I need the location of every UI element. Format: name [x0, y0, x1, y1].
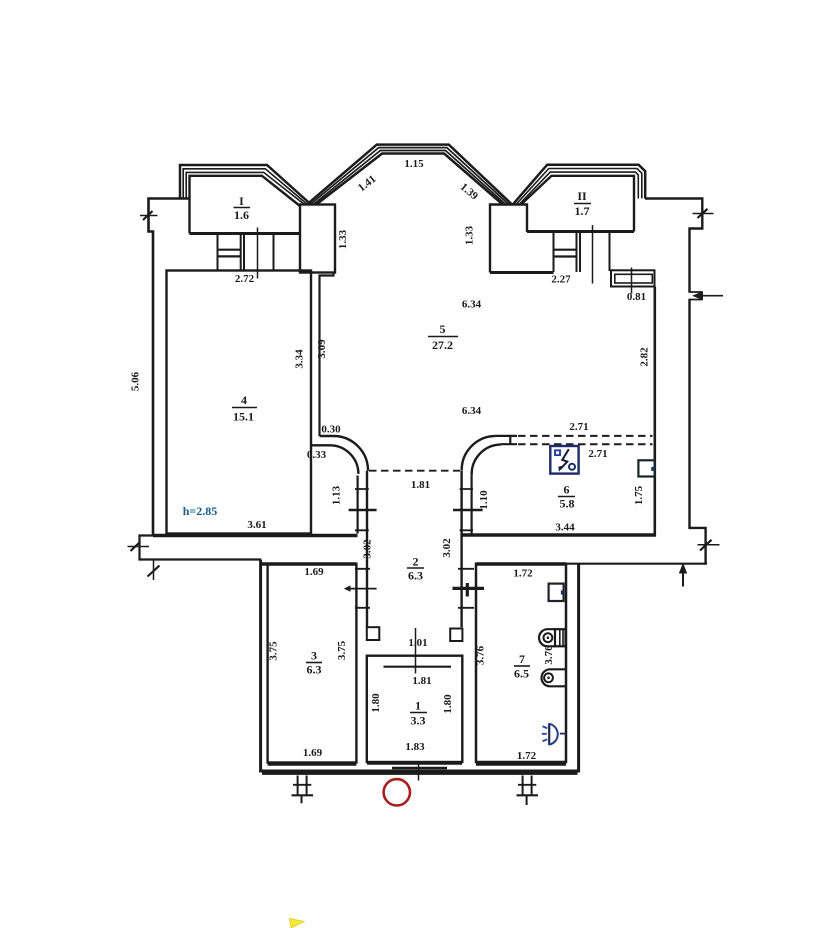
svg-text:2.72: 2.72 — [235, 273, 255, 285]
svg-text:3.09: 3.09 — [316, 339, 328, 359]
svg-text:1.15: 1.15 — [404, 158, 424, 170]
svg-text:6.34: 6.34 — [462, 299, 482, 311]
svg-text:1.01: 1.01 — [408, 637, 427, 649]
svg-text:h=2.85: h=2.85 — [183, 504, 218, 518]
svg-text:3.3: 3.3 — [411, 714, 426, 728]
svg-text:6.5: 6.5 — [514, 667, 529, 681]
svg-text:3.02: 3.02 — [441, 538, 453, 558]
svg-text:6.34: 6.34 — [462, 405, 482, 417]
svg-text:II: II — [577, 189, 587, 203]
svg-text:6: 6 — [564, 483, 570, 497]
svg-text:1.75: 1.75 — [633, 485, 645, 505]
svg-text:I: I — [239, 194, 244, 208]
svg-text:2: 2 — [413, 555, 419, 569]
svg-text:2.82: 2.82 — [639, 347, 651, 367]
svg-text:1.69: 1.69 — [303, 747, 323, 759]
svg-text:3.75: 3.75 — [336, 640, 348, 660]
svg-text:6.3: 6.3 — [307, 663, 322, 677]
svg-text:3.34: 3.34 — [294, 349, 306, 369]
svg-text:7: 7 — [519, 652, 525, 666]
svg-text:3.76: 3.76 — [475, 645, 487, 665]
svg-text:27.2: 27.2 — [432, 338, 453, 352]
svg-text:5.06: 5.06 — [130, 371, 142, 391]
svg-text:3: 3 — [311, 649, 317, 663]
svg-text:2.27: 2.27 — [551, 274, 571, 286]
svg-text:3.76: 3.76 — [543, 645, 555, 665]
svg-text:1.13: 1.13 — [331, 485, 343, 505]
svg-text:0.30: 0.30 — [321, 424, 341, 436]
svg-text:15.1: 15.1 — [233, 410, 254, 424]
svg-text:1.33: 1.33 — [464, 225, 476, 245]
svg-text:1.80: 1.80 — [370, 693, 382, 713]
svg-text:1.81: 1.81 — [411, 479, 430, 491]
svg-text:1.83: 1.83 — [405, 741, 425, 753]
svg-text:3.75: 3.75 — [268, 641, 280, 661]
svg-text:6.3: 6.3 — [408, 569, 423, 583]
svg-text:3.44: 3.44 — [555, 522, 575, 534]
svg-text:1.69: 1.69 — [304, 566, 324, 578]
svg-text:1.6: 1.6 — [234, 208, 249, 222]
svg-text:3.61: 3.61 — [247, 519, 266, 531]
svg-text:0.33: 0.33 — [307, 449, 327, 461]
svg-text:1.72: 1.72 — [513, 568, 533, 580]
svg-text:1.81: 1.81 — [412, 675, 431, 687]
svg-text:1: 1 — [415, 699, 421, 713]
svg-text:3.02: 3.02 — [362, 539, 374, 559]
svg-text:1.10: 1.10 — [478, 490, 490, 510]
svg-text:2.71: 2.71 — [588, 448, 607, 460]
svg-text:5.8: 5.8 — [560, 497, 575, 511]
svg-text:1.7: 1.7 — [575, 204, 590, 218]
svg-text:5: 5 — [440, 322, 446, 336]
svg-text:1.80: 1.80 — [442, 694, 454, 714]
svg-text:0.81: 0.81 — [627, 291, 646, 303]
svg-text:1.33: 1.33 — [337, 229, 349, 249]
svg-text:2.71: 2.71 — [569, 421, 588, 433]
svg-text:1.72: 1.72 — [517, 750, 537, 762]
svg-text:4: 4 — [241, 393, 247, 407]
